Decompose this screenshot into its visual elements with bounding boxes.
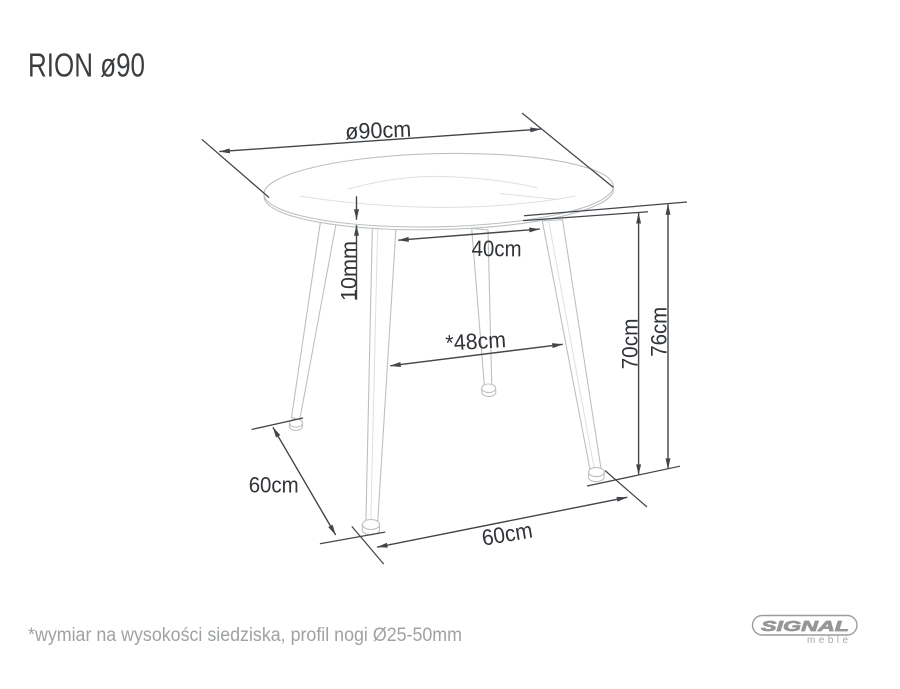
svg-text:ø90cm: ø90cm [345,116,412,144]
svg-text:60cm: 60cm [249,472,299,497]
svg-text:10mm: 10mm [336,241,361,301]
svg-text:SIGNAL: SIGNAL [761,619,849,635]
svg-text:40cm: 40cm [471,236,521,261]
svg-text:*wymiar na wysokości siedziska: *wymiar na wysokości siedziska, profil n… [28,625,462,646]
svg-text:76cm: 76cm [647,307,672,357]
svg-text:meble: meble [807,635,848,646]
svg-text:*48cm: *48cm [445,327,507,356]
svg-text:RION ø90: RION ø90 [28,47,145,84]
svg-text:70cm: 70cm [617,319,642,370]
